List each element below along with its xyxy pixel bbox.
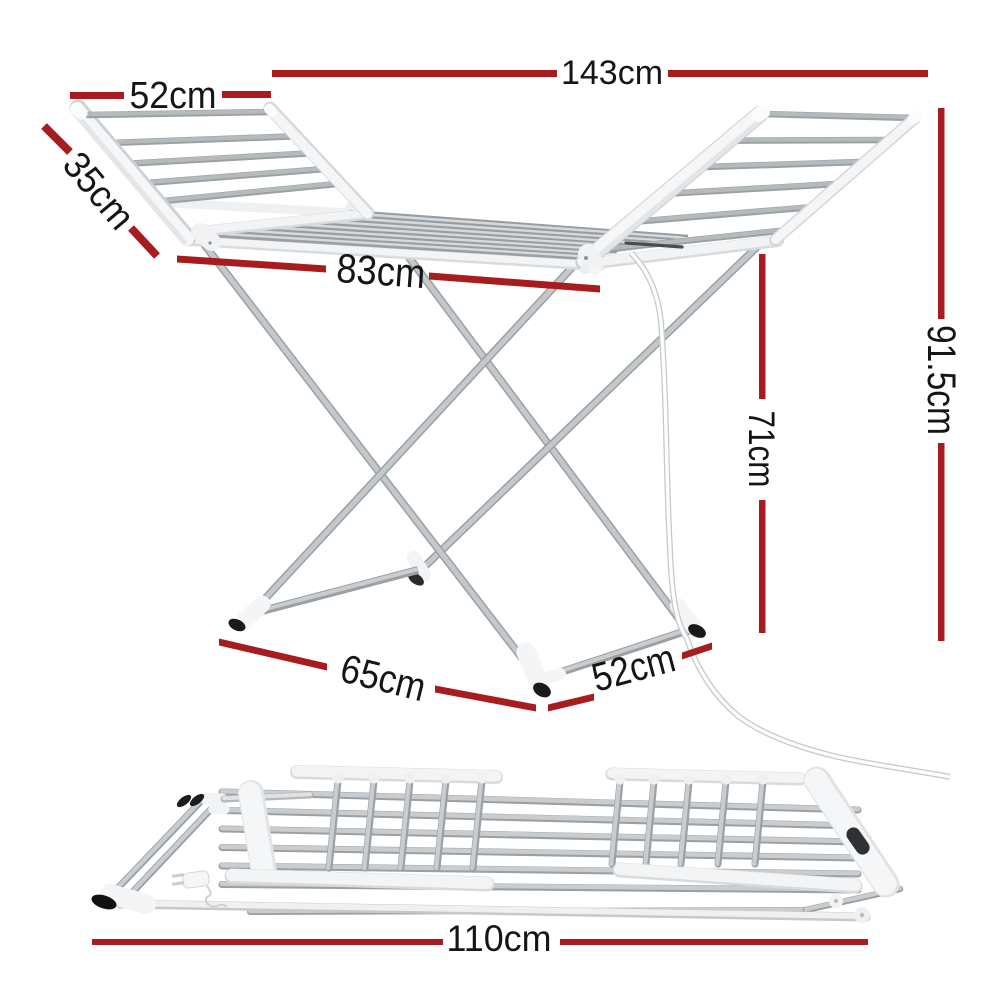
svg-text:83cm: 83cm — [335, 245, 427, 297]
svg-text:52cm: 52cm — [130, 75, 217, 117]
svg-text:143cm: 143cm — [561, 54, 663, 92]
svg-text:110cm: 110cm — [447, 918, 552, 959]
svg-text:71cm: 71cm — [741, 411, 782, 488]
svg-text:91.5cm: 91.5cm — [919, 325, 963, 435]
